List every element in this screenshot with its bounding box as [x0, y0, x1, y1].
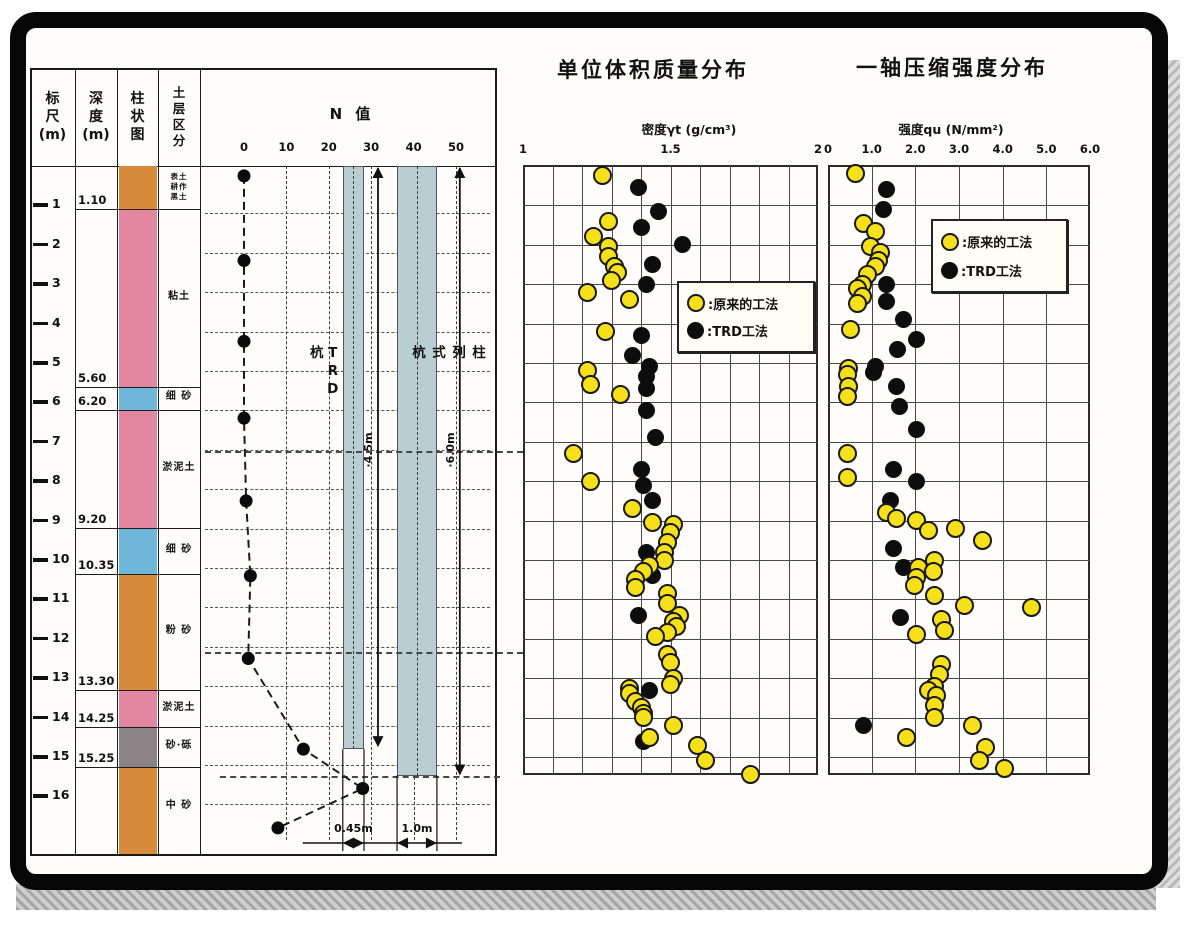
- gamma-chart-title: 单位体积质量分布: [557, 54, 749, 84]
- data-point-conventional: [963, 716, 982, 735]
- n-axis-tick-label: 50: [448, 140, 464, 154]
- soil-label: 中 砂: [158, 799, 200, 813]
- ruler-tick-label: 13: [52, 669, 69, 684]
- chart-tick-label: 6.0: [1080, 142, 1100, 156]
- column-separator: [75, 68, 76, 856]
- header-scale: 标 尺 (m): [30, 68, 75, 166]
- header-soil-classification: 土 层 区 分: [158, 68, 200, 166]
- connector-dashed-line: [205, 451, 523, 453]
- data-point-conventional: [887, 509, 906, 528]
- legend-label: :TRD工法: [961, 261, 1022, 280]
- depth-value: 15.25: [78, 751, 116, 765]
- data-point-trd: [635, 477, 652, 494]
- data-point-conventional: [946, 519, 965, 538]
- layer-boundary-line: [75, 528, 200, 529]
- depth-value: 13.30: [78, 674, 116, 688]
- data-point-conventional: [838, 444, 857, 463]
- data-point-conventional: [925, 708, 944, 727]
- data-point-trd: [908, 473, 925, 490]
- n-gridline-vertical: [371, 166, 372, 840]
- ruler-tick: [33, 361, 48, 365]
- data-point-conventional: [838, 468, 857, 487]
- data-point-conventional: [925, 586, 944, 605]
- depth-value: 10.35: [78, 558, 116, 572]
- n-gridline-vertical: [329, 166, 330, 840]
- soil-label: 细 砂: [158, 390, 200, 404]
- chart-gridline-vertical: [582, 166, 583, 775]
- soil-layer: [119, 690, 158, 727]
- chart-gridline-horizontal: [828, 678, 1090, 679]
- chart-gridline-horizontal: [828, 442, 1090, 443]
- soil-layer: [119, 727, 158, 766]
- n-gridline-vertical: [456, 166, 457, 840]
- ruler-tick-label: 16: [52, 787, 69, 802]
- soil-layer: [119, 574, 158, 690]
- data-point-trd: [908, 331, 925, 348]
- data-point-conventional: [1022, 598, 1041, 617]
- data-point-trd: [633, 461, 650, 478]
- data-point-conventional: [581, 472, 600, 491]
- chart-gridline-horizontal: [828, 481, 1090, 482]
- data-point-conventional: [955, 596, 974, 615]
- data-point-trd: [630, 179, 647, 196]
- chart-gridline-horizontal: [523, 402, 818, 403]
- legend-row-conventional: :原来的工法: [687, 294, 805, 313]
- ruler-tick: [33, 322, 48, 326]
- data-point-trd: [878, 293, 895, 310]
- ruler-tick-label: 6: [52, 393, 61, 408]
- dimension-label: 1.0m: [402, 822, 433, 835]
- layer-boundary-line: [75, 727, 200, 728]
- header-depth: 深 度 (m): [75, 68, 117, 166]
- n-axis-tick-label: 10: [278, 140, 294, 154]
- data-point-conventional: [578, 283, 597, 302]
- ruler-tick-label: 14: [52, 709, 69, 724]
- data-point-conventional: [841, 320, 860, 339]
- chart-gridline-horizontal: [523, 205, 818, 206]
- ruler-tick: [33, 243, 48, 247]
- legend-row-trd: :TRD工法: [687, 321, 805, 340]
- chart-gridline-vertical: [789, 166, 790, 775]
- pile-bar-label: TRD杭: [305, 345, 341, 399]
- n-axis-tick-label: 40: [406, 140, 422, 154]
- data-point-trd: [633, 219, 650, 236]
- ruler-tick-label: 11: [52, 590, 69, 605]
- depth-value: 6.20: [78, 394, 116, 408]
- layer-boundary-line: [75, 209, 200, 210]
- data-point-conventional: [596, 322, 615, 341]
- ruler-tick-label: 15: [52, 748, 69, 763]
- chart-gridline-horizontal: [828, 205, 1090, 206]
- black-dot-icon: [687, 322, 704, 339]
- legend-row-conventional: :原来的工法: [941, 232, 1058, 251]
- ruler-tick: [33, 794, 48, 798]
- data-point-trd: [888, 378, 905, 395]
- chart-tick-label: 1.5: [660, 142, 680, 156]
- data-point-trd: [641, 682, 658, 699]
- data-point-trd: [633, 327, 650, 344]
- n-axis-tick-label: 20: [321, 140, 337, 154]
- data-point-conventional: [623, 499, 642, 518]
- chart-tick-label: 2.0: [905, 142, 925, 156]
- yellow-dot-icon: [941, 233, 959, 251]
- data-point-conventional: [905, 576, 924, 595]
- data-point-conventional: [664, 716, 683, 735]
- soil-label: 粘土: [158, 290, 200, 304]
- data-point-trd: [892, 609, 909, 626]
- header-column-diagram: 柱 状 图: [117, 68, 158, 166]
- chart-gridline-horizontal: [828, 757, 1090, 758]
- data-point-conventional: [611, 385, 630, 404]
- layer-boundary-line: [75, 767, 200, 768]
- data-point-trd: [855, 717, 872, 734]
- chart-gridline-horizontal: [523, 363, 818, 364]
- soil-layer: [119, 166, 158, 209]
- qu-axis-label: 强度qu (N/mm²): [898, 119, 1003, 138]
- legend-label: :原来的工法: [962, 232, 1032, 251]
- gamma-legend: :原来的工法 :TRD工法: [677, 281, 815, 353]
- ruler-tick: [33, 440, 48, 444]
- qu-chart-title: 一轴压缩强度分布: [856, 52, 1048, 82]
- data-point-trd: [885, 540, 902, 557]
- chart-gridline-horizontal: [523, 245, 818, 246]
- data-point-conventional: [741, 765, 760, 784]
- ruler-tick-label: 5: [52, 354, 61, 369]
- chart-gridline-vertical: [915, 166, 916, 775]
- chart-gridline-horizontal: [523, 481, 818, 482]
- data-point-trd: [630, 607, 647, 624]
- data-point-conventional: [995, 759, 1014, 778]
- soil-layer: [119, 387, 158, 411]
- ruler-tick: [33, 203, 48, 207]
- soil-layer: [119, 209, 158, 386]
- data-point-trd: [674, 236, 691, 253]
- ruler-tick-label: 8: [52, 472, 61, 487]
- ruler-tick: [33, 519, 48, 523]
- chart-gridline-horizontal: [828, 402, 1090, 403]
- ruler-tick-label: 7: [52, 433, 61, 448]
- data-point-trd: [889, 341, 906, 358]
- ruler-tick-label: 1: [52, 196, 61, 211]
- soil-label: 表土 耕作 黑土: [158, 172, 200, 202]
- legend-label: :TRD工法: [707, 321, 768, 340]
- data-point-conventional: [564, 444, 583, 463]
- ruler-tick-label: 10: [52, 551, 69, 566]
- ruler-tick: [33, 755, 48, 759]
- data-point-conventional: [602, 271, 621, 290]
- ruler-tick: [33, 558, 48, 562]
- yellow-dot-icon: [687, 294, 705, 312]
- data-point-conventional: [599, 212, 618, 231]
- n-gridline-horizontal: [205, 765, 490, 766]
- ruler-tick-label: 2: [52, 236, 61, 251]
- soil-label: 砂·砾: [158, 739, 200, 753]
- layer-boundary-line: [75, 387, 200, 388]
- ruler-tick: [33, 637, 48, 641]
- data-point-trd: [891, 398, 908, 415]
- layer-boundary-line: [75, 410, 200, 411]
- chart-tick-label: 1: [519, 142, 527, 156]
- ruler-tick: [33, 400, 48, 404]
- layer-boundary-line: [75, 574, 200, 575]
- pile-bar-centerline: [417, 166, 418, 776]
- chart-tick-label: 1.0: [861, 142, 881, 156]
- data-point-conventional: [919, 521, 938, 540]
- gamma-axis-label: 密度γt (g/cm³): [642, 119, 737, 138]
- soil-layer: [119, 410, 158, 528]
- data-point-trd: [878, 181, 895, 198]
- chart-tick-label: 3.0: [949, 142, 969, 156]
- depth-value: 9.20: [78, 512, 116, 526]
- ruler-tick: [33, 597, 48, 601]
- data-point-conventional: [640, 728, 659, 747]
- data-point-conventional: [838, 387, 857, 406]
- chart-gridline-horizontal: [523, 442, 818, 443]
- ruler-tick: [33, 716, 48, 720]
- soil-label: 细 砂: [158, 543, 200, 557]
- n-axis-tick-label: 30: [363, 140, 379, 154]
- legend-label: :原来的工法: [708, 294, 778, 313]
- dimension-label: 0.45m: [334, 822, 373, 835]
- data-point-trd: [878, 276, 895, 293]
- qu-legend: :原来的工法 :TRD工法: [931, 219, 1068, 293]
- chart-tick-label: 0: [824, 142, 832, 156]
- n-axis-tick-label: 0: [240, 140, 248, 154]
- pile-bar-label: 柱列式杭: [407, 345, 487, 361]
- chart-tick-label: 2: [814, 142, 822, 156]
- data-point-trd: [650, 203, 667, 220]
- n-gridline-horizontal: [205, 804, 490, 805]
- chart-gridline-vertical: [700, 166, 701, 775]
- soil-layer: [119, 767, 158, 854]
- data-point-conventional: [661, 675, 680, 694]
- data-point-trd: [638, 276, 655, 293]
- depth-value: 5.60: [78, 371, 116, 385]
- data-point-conventional: [973, 531, 992, 550]
- connector-dashed-line: [205, 652, 523, 654]
- chart-gridline-horizontal: [828, 639, 1090, 640]
- soil-label: 粉 砂: [158, 624, 200, 638]
- depth-value: 1.10: [78, 193, 116, 207]
- chart-gridline-vertical: [759, 166, 760, 775]
- data-point-conventional: [907, 625, 926, 644]
- chart-gridline-vertical: [553, 166, 554, 775]
- ruler-tick-label: 9: [52, 512, 61, 527]
- ruler-tick: [33, 676, 48, 680]
- ruler-tick-label: 4: [52, 315, 61, 330]
- soil-label: 淤泥土: [158, 701, 200, 715]
- chart-tick-label: 4.0: [992, 142, 1012, 156]
- data-point-trd: [624, 347, 641, 364]
- n-gridline-vertical: [286, 166, 287, 840]
- n-chart-title: N 值: [330, 103, 375, 124]
- soil-label: 淤泥土: [158, 461, 200, 475]
- layer-boundary-line: [75, 690, 200, 691]
- ruler-tick-label: 12: [52, 630, 69, 645]
- chart-gridline-horizontal: [523, 757, 818, 758]
- ruler-tick: [33, 479, 48, 483]
- depth-value: 14.25: [78, 711, 116, 725]
- chart-gridline-horizontal: [828, 560, 1090, 561]
- data-point-conventional: [897, 728, 916, 747]
- figure-content: 标 尺 (m) 深 度 (m) 柱 状 图 土 层 区 分 1234567891…: [0, 0, 1192, 925]
- ruler-tick: [33, 282, 48, 286]
- chart-gridline-horizontal: [828, 324, 1090, 325]
- chart-tick-label: 5.0: [1036, 142, 1056, 156]
- connector-dashed-line: [220, 776, 500, 778]
- soil-layer: [119, 528, 158, 573]
- chart-gridline-vertical: [730, 166, 731, 775]
- ruler-tick-label: 3: [52, 275, 61, 290]
- black-dot-icon: [941, 262, 958, 279]
- column-separator: [200, 68, 201, 856]
- pile-bar-centerline: [353, 166, 354, 749]
- data-point-conventional: [626, 578, 645, 597]
- legend-row-trd: :TRD工法: [941, 261, 1058, 280]
